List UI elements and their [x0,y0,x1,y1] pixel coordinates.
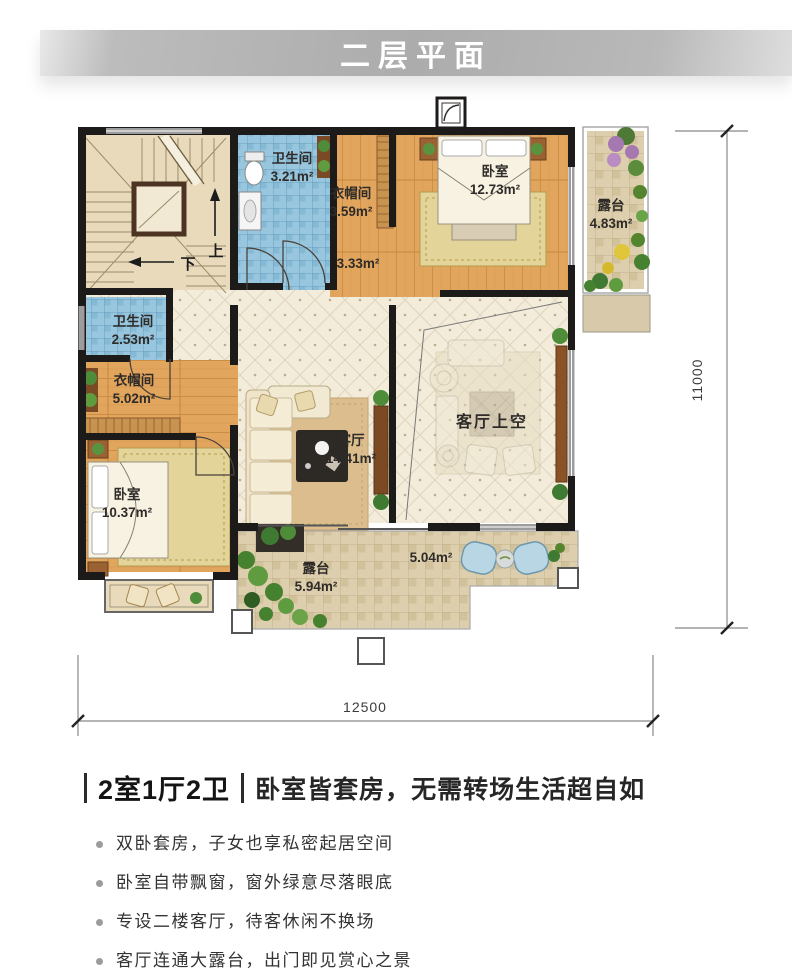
feature-item: 客厅连通大露台，出门即见赏心之景 [96,950,762,972]
feature-text: 卧室自带飘窗，窗外绿意尽落眼底 [116,872,394,894]
bullet-dot [96,919,103,926]
vent-symbol [437,98,465,128]
roof-ledge [583,295,650,332]
room-label-corridor: 3.33m² [337,255,380,273]
bullet-dot [96,841,103,848]
stairs-down-label: 下 [180,253,195,274]
room-label-bedroom1: 卧室 12.73m² [470,163,520,198]
divider-bar [84,773,87,803]
headline: 2室1厅2卫 卧室皆套房，无需转场生活超自如 [84,768,762,807]
feature-item: 双卧套房，子女也享私密起居空间 [96,833,762,855]
stairs-up-label: 上 [208,240,223,261]
feature-item: 专设二楼客厅，待客休闲不换场 [96,911,762,933]
feature-item: 卧室自带飘窗，窗外绿意尽落眼底 [96,872,762,894]
room-label-terrace-504: 5.04m² [410,549,453,567]
dimension-height: 11000 [689,359,705,402]
living-room-furniture [246,386,389,552]
tagline: 卧室皆套房，无需转场生活超自如 [255,770,645,806]
feature-text: 双卧套房，子女也享私密起居空间 [116,833,394,855]
terrace-table [496,550,514,568]
dimension-width: 12500 [343,699,387,715]
room-label-terrace-right: 露台 4.83m² [590,197,633,232]
room-label-bathroom1: 卫生间 3.21m² [271,150,314,185]
feature-list: 双卧套房，子女也享私密起居空间 卧室自带飘窗，窗外绿意尽落眼底 专设二楼客厅，待… [84,833,762,972]
bed-bench [452,224,516,240]
void-ghost-furniture [430,340,540,476]
room-label-bathroom2: 卫生间 2.53m² [112,313,155,348]
feature-text: 客厅连通大露台，出门即见赏心之景 [116,950,412,972]
page: 二层平面 [0,0,792,980]
room-label-bedroom2: 卧室 10.37m² [102,486,152,521]
room-label-terrace-bottom: 露台 5.94m² [295,560,338,595]
room-label-void: 客厅上空 [456,413,528,434]
divider-bar [241,773,244,803]
layout-badge: 2室1厅2卫 [98,768,230,807]
bed1 [420,136,546,266]
bullet-dot [96,958,103,965]
feature-text: 专设二楼客厅，待客休闲不换场 [116,911,375,933]
room-label-cloakroom1: 衣帽间 3.59m² [330,185,373,220]
info-section: 2室1厅2卫 卧室皆套房，无需转场生活超自如 双卧套房，子女也享私密起居空间 卧… [84,768,762,980]
room-label-cloakroom2: 衣帽间 5.02m² [113,372,156,407]
bullet-dot [96,880,103,887]
room-label-living: 客厅 14.41m² [326,432,376,467]
